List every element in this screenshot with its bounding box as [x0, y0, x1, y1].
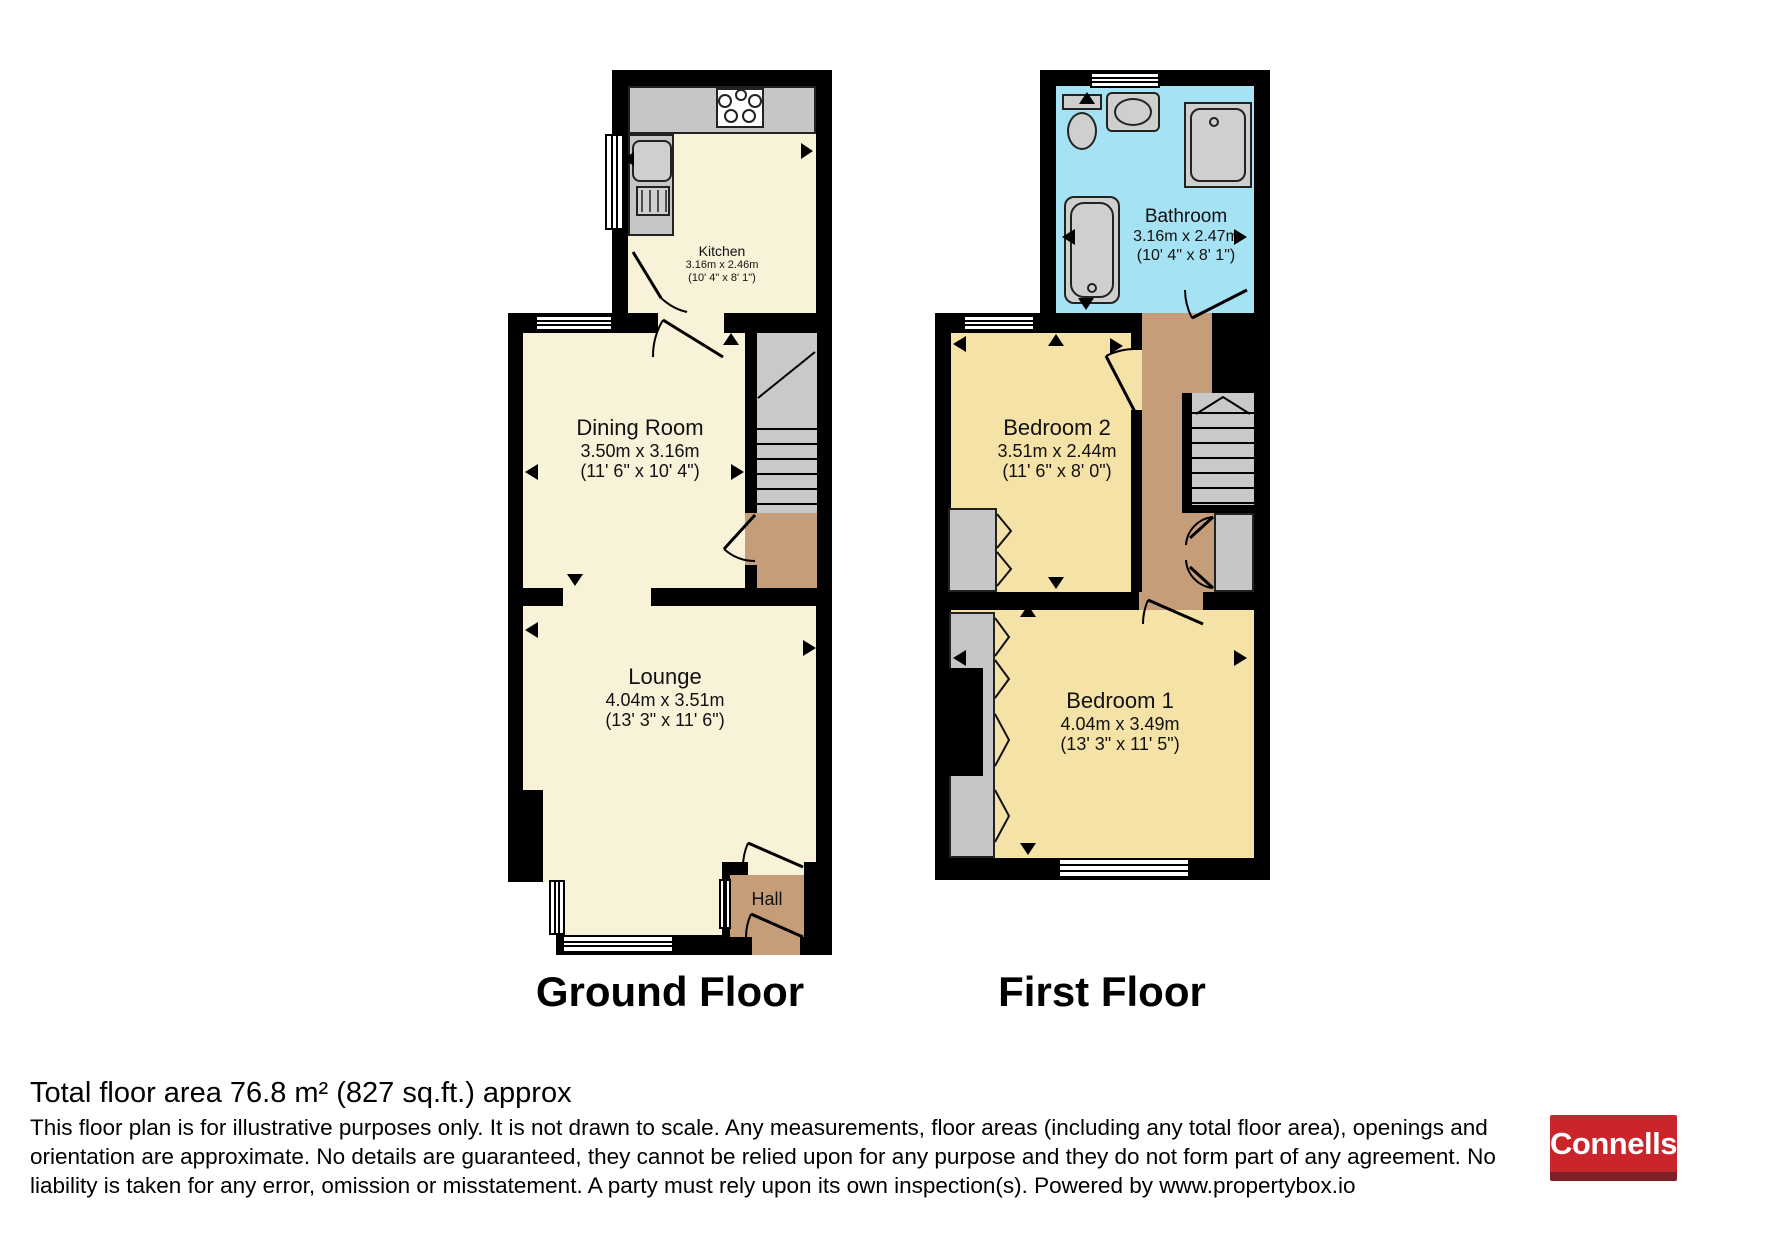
hob-icon — [716, 88, 764, 128]
cupboard-access — [1182, 513, 1214, 592]
room-size-metric: 4.04m x 3.49m — [1000, 714, 1240, 735]
room-name: Hall — [728, 889, 806, 910]
disclaimer-line-3: liability is taken for any error, omissi… — [30, 1171, 1496, 1200]
room-size-metric: 3.16m x 2.47m — [1096, 228, 1276, 247]
bedroom1-label: Bedroom 1 4.04m x 3.49m (13' 3" x 11' 5"… — [1000, 688, 1240, 755]
room-size-imperial: (11' 6" x 8' 0") — [957, 461, 1157, 482]
room-name: Bathroom — [1096, 206, 1276, 228]
room-size-imperial: (10' 4" x 8' 1") — [1096, 247, 1276, 266]
room-size-imperial: (11' 6" x 10' 4") — [520, 461, 760, 482]
bedroom2-label: Bedroom 2 3.51m x 2.44m (11' 6" x 8' 0") — [957, 415, 1157, 482]
bedroom2-window — [963, 315, 1035, 331]
lounge-hall-doorway — [748, 862, 804, 875]
room-name: Bedroom 1 — [1000, 688, 1240, 714]
plan-glyphs-overlay — [0, 0, 1771, 1240]
dining-room-label: Dining Room 3.50m x 3.16m (11' 6" x 10' … — [520, 415, 760, 482]
disclaimer-line-2: orientation are approximate. No details … — [30, 1142, 1496, 1171]
front-door-opening — [752, 937, 800, 955]
first-floor-title: First Floor — [922, 968, 1282, 1016]
disclaimer-text: This floor plan is for illustrative purp… — [30, 1113, 1496, 1200]
bathroom-doorway — [1142, 313, 1212, 333]
sink-icon — [632, 140, 672, 182]
kitchen-dining-doorway — [658, 313, 724, 333]
basin-bowl-icon — [1114, 98, 1152, 126]
bedroom2-wardrobe — [948, 508, 997, 592]
disclaimer-line-1: This floor plan is for illustrative purp… — [30, 1113, 1496, 1142]
lounge-floor — [523, 606, 816, 862]
lounge-chimney-breast — [523, 790, 543, 882]
room-name: Dining Room — [520, 415, 760, 441]
dining-lounge-opening — [563, 588, 651, 606]
dining-hall-doorway — [745, 513, 757, 565]
bedroom1-doorway — [1139, 592, 1203, 610]
landing-cupboard — [1214, 513, 1254, 592]
lounge-label: Lounge 4.04m x 3.51m (13' 3" x 11' 6") — [545, 664, 785, 731]
room-size-metric: 3.51m x 2.44m — [957, 441, 1157, 462]
gf-understair-hall — [757, 513, 817, 588]
room-size-imperial: (13' 3" x 11' 6") — [545, 710, 785, 731]
room-size-metric: 3.50m x 3.16m — [520, 441, 760, 462]
landing-top — [1142, 333, 1212, 393]
bathroom-window — [1090, 72, 1160, 88]
sink-drainer-icon — [636, 186, 670, 216]
room-size-metric: 3.16m x 2.46m — [642, 259, 802, 272]
bedroom1-window — [1058, 858, 1190, 878]
toilet-bowl-icon — [1067, 112, 1097, 150]
room-size-imperial: (10' 4" x 8' 1") — [642, 272, 802, 285]
bay-side-window — [549, 880, 565, 935]
gf-stair-treads — [757, 428, 817, 513]
bathroom-label: Bathroom 3.16m x 2.47m (10' 4" x 8' 1") — [1096, 206, 1276, 265]
room-size-imperial: (13' 3" x 11' 5") — [1000, 734, 1240, 755]
bedroom1-chimney-breast — [935, 668, 983, 776]
room-size-metric: 4.04m x 3.51m — [545, 690, 785, 711]
connells-logo-base — [1550, 1172, 1677, 1181]
shower-inner-icon — [1190, 108, 1246, 182]
room-name: Lounge — [545, 664, 785, 690]
total-floor-area: Total floor area 76.8 m² (827 sq.ft.) ap… — [30, 1077, 572, 1110]
lounge-front-window — [562, 935, 674, 953]
room-name: Kitchen — [642, 243, 802, 259]
bedroom2-doorway — [1131, 350, 1142, 410]
ff-stair-treads — [1192, 412, 1254, 505]
ground-floor-title: Ground Floor — [490, 968, 850, 1016]
connells-logo: Connells — [1550, 1115, 1677, 1172]
room-name: Bedroom 2 — [957, 415, 1157, 441]
dining-room-window — [535, 315, 613, 331]
toilet-cistern-icon — [1062, 94, 1102, 110]
kitchen-label: Kitchen 3.16m x 2.46m (10' 4" x 8' 1") — [642, 243, 802, 285]
hall-label: Hall — [728, 889, 806, 910]
kitchen-window — [605, 134, 624, 230]
